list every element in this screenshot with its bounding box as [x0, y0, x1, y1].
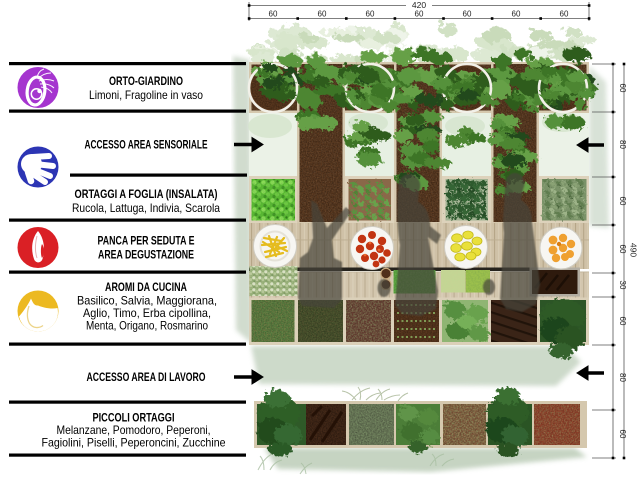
svg-text:490: 490: [629, 243, 639, 257]
svg-text:60: 60: [366, 10, 375, 19]
svg-text:60: 60: [318, 10, 327, 19]
svg-text:60: 60: [415, 10, 424, 19]
svg-text:ACCESSO AREA SENSORIALE: ACCESSO AREA SENSORIALE: [85, 138, 208, 152]
svg-text:ORTO-GIARDINO: ORTO-GIARDINO: [109, 74, 183, 88]
svg-text:ACCESSO AREA DI LAVORO: ACCESSO AREA DI LAVORO: [87, 370, 206, 384]
svg-text:60: 60: [618, 84, 627, 93]
svg-text:AROMI DA CUCINA: AROMI DA CUCINA: [105, 280, 187, 294]
svg-text:ORTAGGI A FOGLIA (INSALATA): ORTAGGI A FOGLIA (INSALATA): [75, 187, 218, 201]
svg-text:30: 30: [618, 281, 627, 290]
svg-text:60: 60: [269, 10, 278, 19]
svg-text:60: 60: [560, 10, 569, 19]
svg-text:Fagiolini, Piselli, Peperoncin: Fagiolini, Piselli, Peperoncini, Zucchin…: [42, 436, 226, 450]
svg-text:60: 60: [512, 10, 521, 19]
svg-text:Rucola, Lattuga, Indivia, Scar: Rucola, Lattuga, Indivia, Scarola: [72, 201, 220, 215]
svg-text:60: 60: [618, 197, 627, 206]
svg-text:Menta, Origano, Rosmarino: Menta, Origano, Rosmarino: [86, 319, 208, 333]
svg-text:60: 60: [618, 245, 627, 254]
svg-text:80: 80: [618, 140, 627, 149]
svg-text:60: 60: [463, 10, 472, 19]
svg-text:PANCA PER SEDUTA E: PANCA PER SEDUTA E: [98, 234, 195, 248]
svg-text:60: 60: [618, 430, 627, 439]
svg-text:Limoni, Fragoline in vaso: Limoni, Fragoline in vaso: [89, 88, 203, 102]
svg-text:420: 420: [412, 0, 426, 10]
svg-text:AREA DEGUSTAZIONE: AREA DEGUSTAZIONE: [98, 248, 194, 262]
svg-text:60: 60: [618, 317, 627, 326]
svg-text:80: 80: [618, 373, 627, 382]
